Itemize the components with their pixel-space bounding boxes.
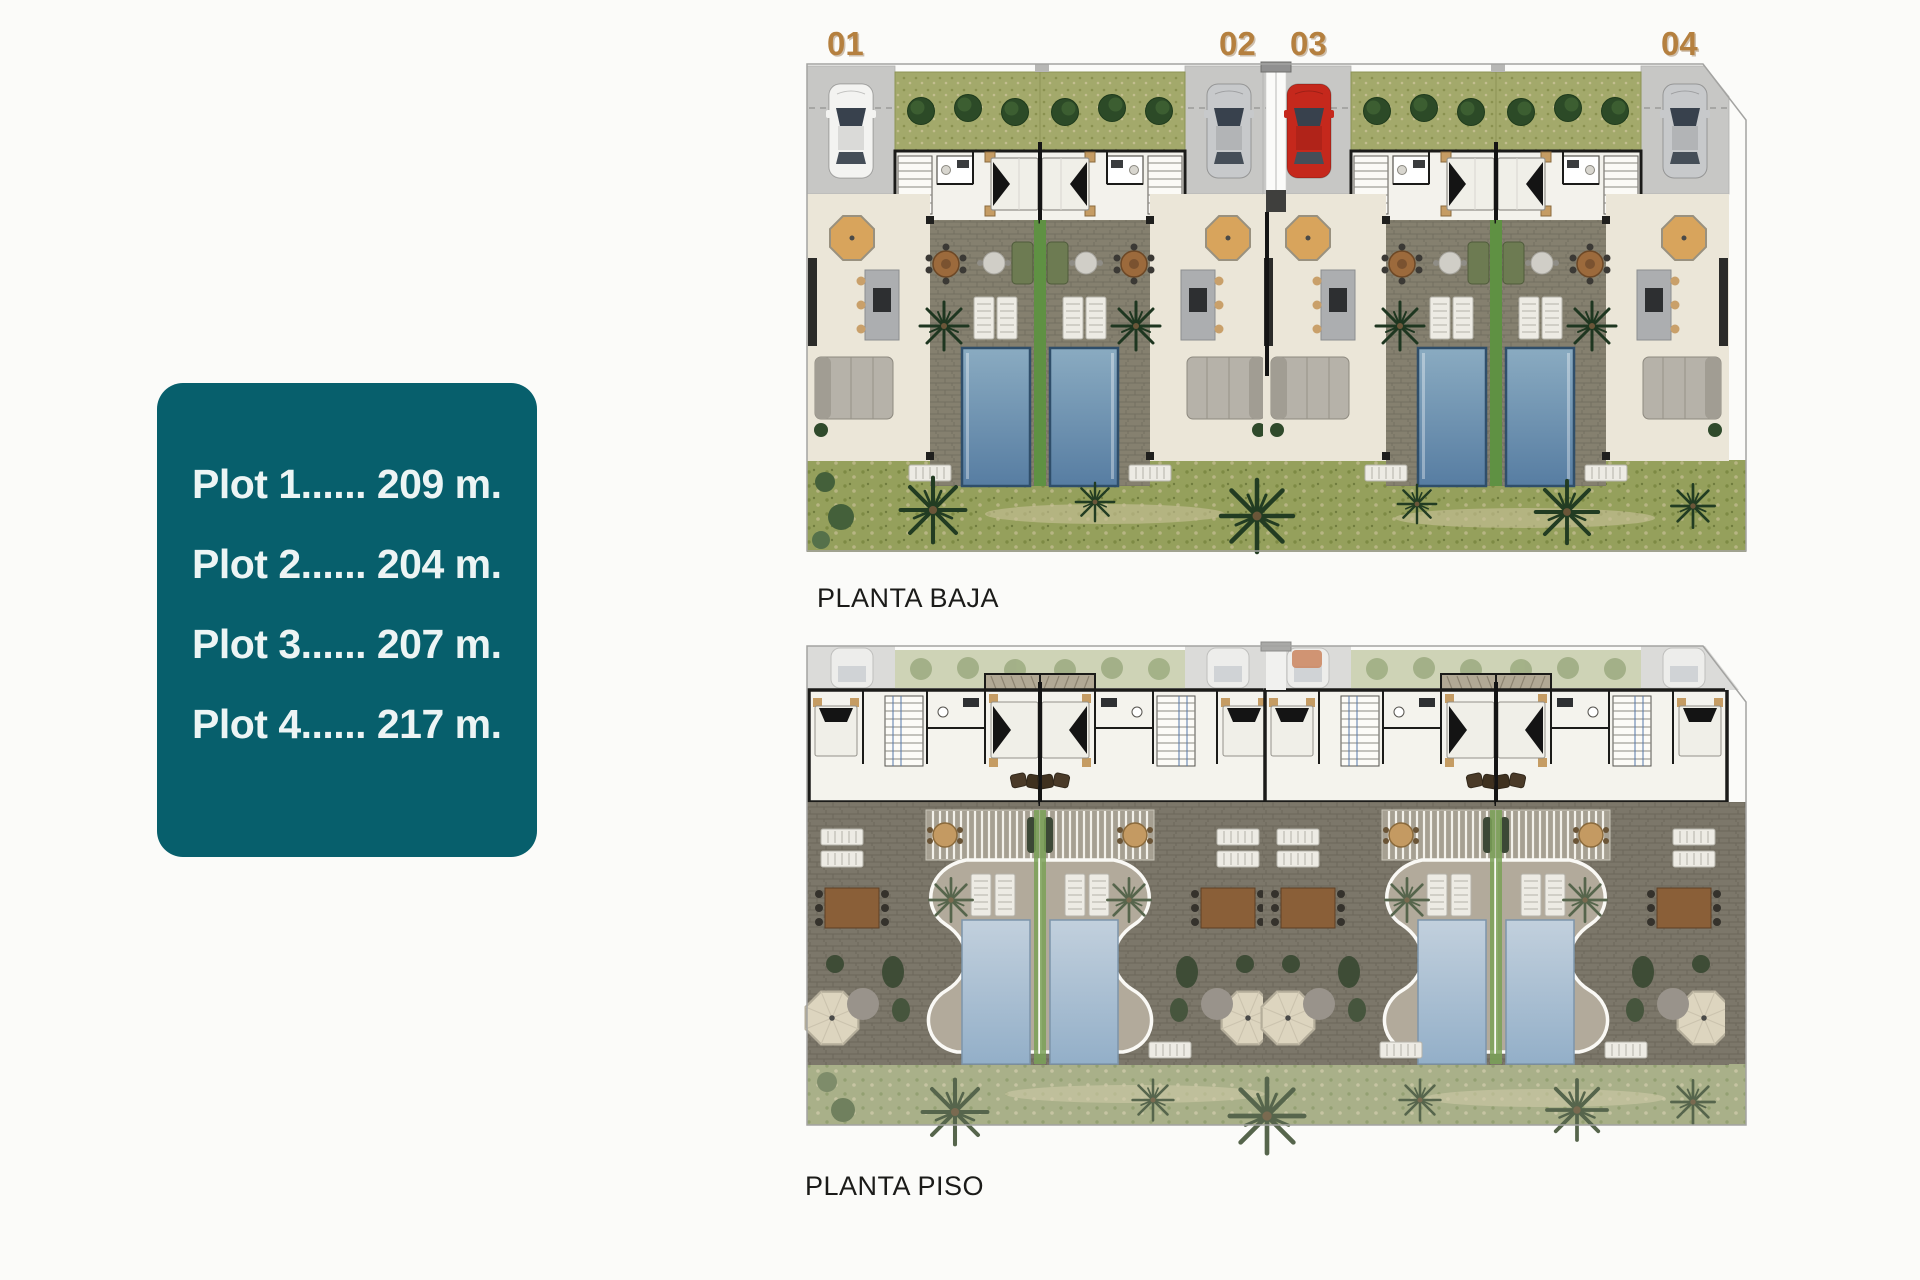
ground-floor-title: PLANTA BAJA bbox=[817, 585, 999, 612]
car-red-plot3 bbox=[1284, 84, 1334, 178]
plot-number-02: 02 bbox=[1219, 27, 1256, 60]
plot-sizes-card: Plot 1...... 209 m. Plot 2...... 204 m. … bbox=[157, 383, 537, 857]
plot-number-01: 01 bbox=[827, 27, 864, 60]
plot-size-item-1: Plot 1...... 209 m. bbox=[192, 463, 517, 505]
plot-size-item-2: Plot 2...... 204 m. bbox=[192, 543, 517, 585]
ground-floor-plan bbox=[805, 62, 1749, 574]
plot-size-item-3: Plot 3...... 207 m. bbox=[192, 623, 517, 665]
plot-number-03: 03 bbox=[1290, 27, 1327, 60]
car-silver-plot4 bbox=[1660, 84, 1710, 178]
plot-number-04: 04 bbox=[1661, 27, 1698, 60]
car-white-plot1 bbox=[826, 84, 876, 178]
plot-size-item-4: Plot 4...... 217 m. bbox=[192, 703, 517, 745]
page: Plot 1...... 209 m. Plot 2...... 204 m. … bbox=[0, 0, 1920, 1280]
upper-floor-plan bbox=[805, 642, 1749, 1202]
car-silver-plot2 bbox=[1204, 84, 1254, 178]
